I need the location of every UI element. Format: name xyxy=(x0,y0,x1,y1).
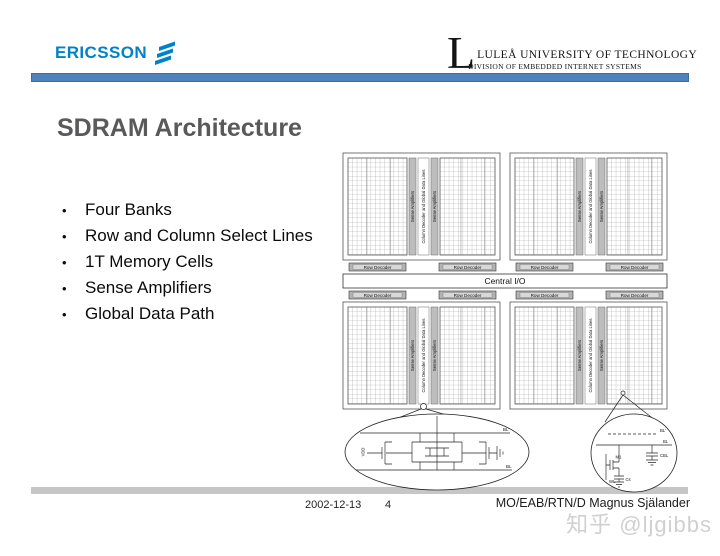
vdd-label: VDD xyxy=(361,448,366,457)
university-division: DIVISION OF EMBEDDED INTERNET SYSTEMS xyxy=(468,62,697,71)
row-decoder-bar xyxy=(516,263,573,271)
wordline-label: WL xyxy=(609,479,616,484)
bullet-text: Sense Amplifiers xyxy=(85,278,212,298)
row-decoder-bar xyxy=(606,263,663,271)
row-decoder-bar xyxy=(606,291,663,299)
slide-canvas: ERICSSON L LULEÅ UNIVERSITY OF TECHNOLOG… xyxy=(0,0,720,556)
row-decoder-bar xyxy=(439,291,496,299)
bullet-text: 1T Memory Cells xyxy=(85,252,213,272)
bullet-text: Row and Column Select Lines xyxy=(85,226,313,246)
bullet-text: Global Data Path xyxy=(85,304,214,324)
central-io-label: Central I/O xyxy=(484,276,525,286)
callout-origin-dot xyxy=(621,391,625,395)
bullet-item: • Global Data Path xyxy=(62,304,313,330)
bitline-cap-label: CBL xyxy=(660,453,669,458)
sense-amp-callout xyxy=(345,404,529,491)
bullet-marker: • xyxy=(62,307,85,322)
m1-transistor-label: M1 xyxy=(616,455,622,460)
bullet-marker: • xyxy=(62,255,85,270)
page-title: SDRAM Architecture xyxy=(57,114,302,143)
university-name: LULEÅ UNIVERSITY OF TECHNOLOGY xyxy=(477,49,697,61)
row-decoder-bar xyxy=(349,263,406,271)
memory-bank-top-right xyxy=(510,153,667,260)
ericsson-logo-text: ERICSSON xyxy=(55,43,147,63)
row-decoder-bar xyxy=(439,263,496,271)
bl-complement-label: BL' xyxy=(503,427,510,432)
sdram-architecture-diagram: Sense Amplifiers Column Decoder and Glob… xyxy=(340,150,690,505)
bullet-list: • Four Banks • Row and Column Select Lin… xyxy=(62,200,313,330)
bullet-marker: • xyxy=(62,203,85,218)
university-logo: L LULEÅ UNIVERSITY OF TECHNOLOGY DIVISIO… xyxy=(447,32,697,74)
row-decoder-bar xyxy=(516,291,573,299)
bullet-marker: • xyxy=(62,229,85,244)
bullet-marker: • xyxy=(62,281,85,296)
cell-bl-label: BL xyxy=(663,439,669,444)
row-decoder-bar xyxy=(349,291,406,299)
memory-bank-top-left xyxy=(343,153,500,260)
ericsson-logo-mark xyxy=(154,40,176,66)
memory-bank-bottom-right xyxy=(510,302,667,409)
bullet-item: • Four Banks xyxy=(62,200,313,226)
storage-cap-label: Cs xyxy=(626,477,631,482)
bullet-item: • 1T Memory Cells xyxy=(62,252,313,278)
cell-bl-complement-label: BL' xyxy=(660,428,666,433)
bullet-text: Four Banks xyxy=(85,200,172,220)
memory-bank-bottom-left xyxy=(343,302,500,409)
bullet-item: • Sense Amplifiers xyxy=(62,278,313,304)
ericsson-logo: ERICSSON xyxy=(55,40,176,66)
bullet-item: • Row and Column Select Lines xyxy=(62,226,313,252)
watermark: 知乎 @ljgibbs xyxy=(566,507,712,539)
bl-label: BL xyxy=(506,464,512,469)
header-rule xyxy=(31,73,689,82)
callout-origin-dot xyxy=(421,404,427,410)
